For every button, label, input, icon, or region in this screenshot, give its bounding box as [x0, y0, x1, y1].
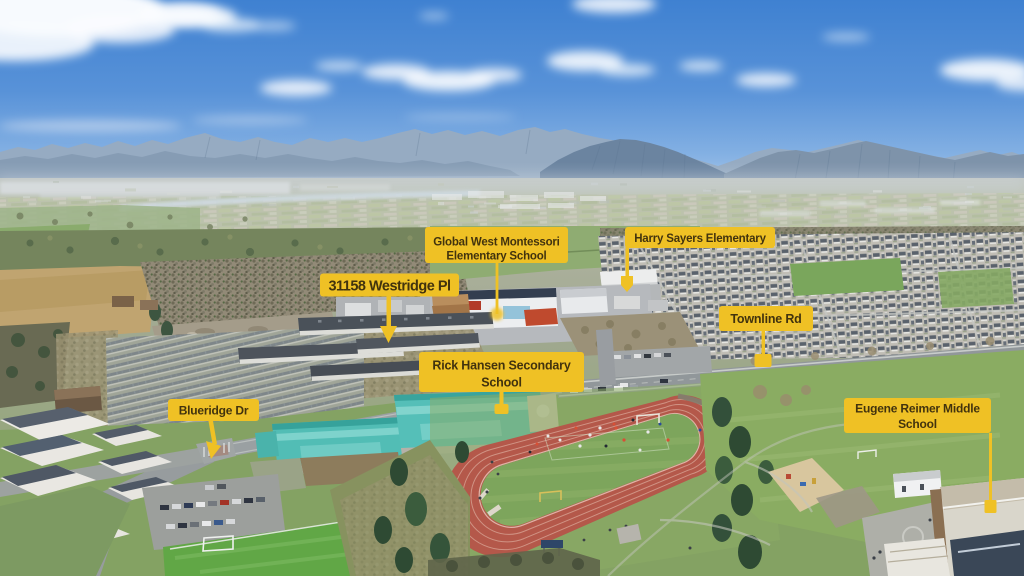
svg-text:Rick Hansen Secondary: Rick Hansen Secondary: [432, 359, 570, 373]
svg-text:School: School: [481, 376, 521, 390]
svg-text:Blueridge Dr: Blueridge Dr: [179, 404, 249, 418]
svg-text:Townline Rd: Townline Rd: [730, 312, 801, 326]
svg-text:Eugene Reimer Middle: Eugene Reimer Middle: [855, 402, 980, 416]
svg-text:School: School: [898, 417, 937, 431]
svg-text:31158 Westridge Pl: 31158 Westridge Pl: [328, 279, 450, 295]
svg-text:Harry Sayers Elementary: Harry Sayers Elementary: [634, 233, 766, 245]
svg-text:Global West Montessori: Global West Montessori: [433, 237, 559, 249]
svg-text:Elementary School: Elementary School: [446, 251, 546, 263]
